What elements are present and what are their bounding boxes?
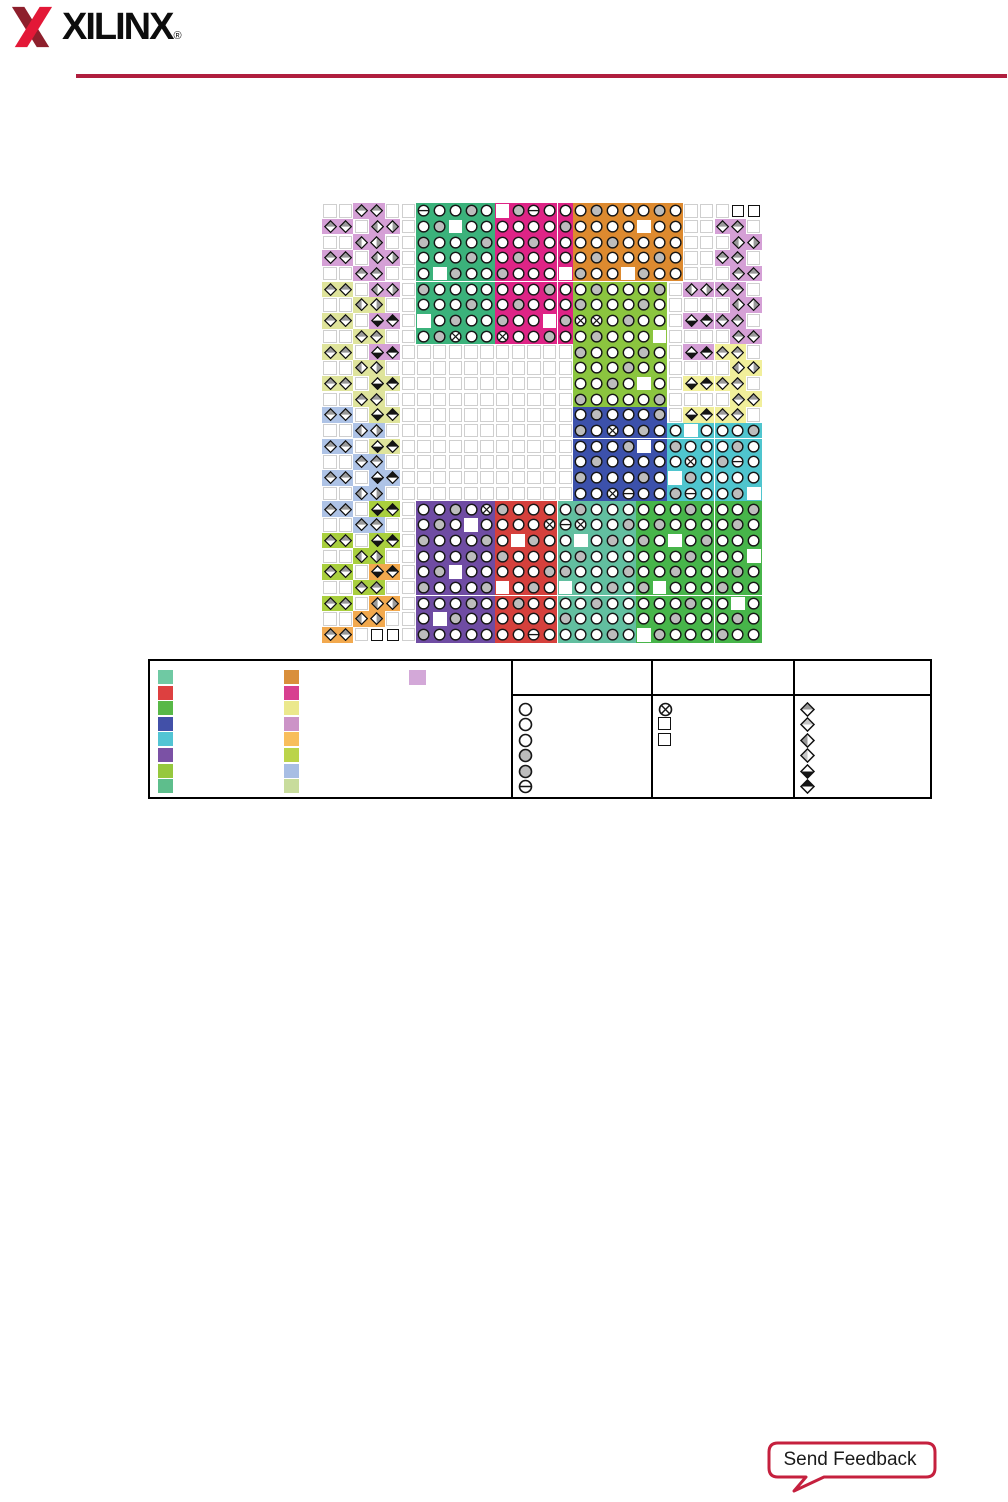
ball-cell xyxy=(479,564,495,580)
removed-ball xyxy=(449,565,463,579)
ball-cell xyxy=(652,580,668,596)
ball-cell xyxy=(416,564,432,580)
grid-cell xyxy=(510,423,526,439)
ball-cell xyxy=(620,596,636,612)
grid-cell xyxy=(510,376,526,392)
ball-cell xyxy=(526,250,542,266)
removed-ball xyxy=(747,549,761,563)
grid-cell xyxy=(699,234,715,250)
diamond-pair xyxy=(369,470,400,486)
grid-cell xyxy=(510,470,526,486)
ball-cell xyxy=(620,297,636,313)
ball-cell xyxy=(573,564,589,580)
ball-cell xyxy=(558,611,574,627)
grid-cell xyxy=(463,344,479,360)
ball-cell xyxy=(479,234,495,250)
legend-color-chip xyxy=(158,764,173,778)
grid-cell xyxy=(463,486,479,502)
ball-cell xyxy=(730,611,746,627)
ball-cell xyxy=(573,627,589,643)
diamond-pair xyxy=(353,203,384,219)
grid-cell xyxy=(322,580,338,596)
grid-cell xyxy=(353,470,369,486)
ball-cell xyxy=(479,611,495,627)
ball-cell xyxy=(652,282,668,298)
ball-cell xyxy=(730,627,746,643)
diamond-pair xyxy=(730,391,761,407)
ball-cell xyxy=(683,454,699,470)
grid-cell xyxy=(542,376,558,392)
ball-cell xyxy=(558,329,574,345)
ball-cell xyxy=(448,203,464,219)
ball-cell xyxy=(667,517,683,533)
ball-cell xyxy=(605,501,621,517)
ball-cell xyxy=(510,548,526,564)
ball-cell xyxy=(636,376,652,392)
ball-cell xyxy=(432,611,448,627)
ball-cell xyxy=(510,611,526,627)
removed-ball xyxy=(559,267,573,281)
legend-extra-chip xyxy=(409,670,426,685)
ball-cell xyxy=(652,470,668,486)
ball-cell xyxy=(510,564,526,580)
grid-cell xyxy=(448,407,464,423)
ball-cell xyxy=(463,282,479,298)
ball-cell xyxy=(542,564,558,580)
grid-cell xyxy=(416,470,432,486)
grid-cell xyxy=(432,344,448,360)
grid-cell xyxy=(746,250,762,266)
ball-cell xyxy=(573,203,589,219)
ball-cell xyxy=(558,266,574,282)
ball-cell xyxy=(463,533,479,549)
ball-cell xyxy=(652,548,668,564)
grid-cell xyxy=(558,344,574,360)
ball-cell xyxy=(558,564,574,580)
diamond-pair xyxy=(683,407,714,423)
grid-cell xyxy=(416,439,432,455)
ball-cell xyxy=(699,533,715,549)
ball-cell xyxy=(542,282,558,298)
ball-cell xyxy=(573,376,589,392)
ball-cell xyxy=(542,234,558,250)
ball-cell xyxy=(448,596,464,612)
grid-cell xyxy=(353,564,369,580)
diamond-pair xyxy=(322,596,353,612)
ball-cell xyxy=(589,250,605,266)
grid-cell xyxy=(526,470,542,486)
ball-cell xyxy=(605,376,621,392)
ball-cell xyxy=(463,580,479,596)
ball-cell xyxy=(589,517,605,533)
grid-cell xyxy=(479,360,495,376)
corner-marker-square xyxy=(369,627,385,643)
grid-cell xyxy=(353,344,369,360)
legend-color-chip xyxy=(284,748,299,762)
diamond-pair xyxy=(322,439,353,455)
diamond-pair xyxy=(369,313,400,329)
grid-cell xyxy=(385,548,401,564)
grid-cell xyxy=(432,360,448,376)
ball-cell xyxy=(683,533,699,549)
ball-cell xyxy=(495,313,511,329)
ball-cell xyxy=(636,360,652,376)
ball-cell xyxy=(636,596,652,612)
grid-cell xyxy=(510,344,526,360)
legend-color-chip xyxy=(284,717,299,731)
ball-cell xyxy=(510,266,526,282)
diamond-pair xyxy=(322,564,353,580)
ball-cell xyxy=(652,533,668,549)
ball-cell xyxy=(589,203,605,219)
ball-cell xyxy=(636,203,652,219)
ball-cell xyxy=(652,439,668,455)
ball-cell xyxy=(636,297,652,313)
grid-cell xyxy=(353,627,369,643)
grid-cell xyxy=(401,391,417,407)
ball-cell xyxy=(558,596,574,612)
grid-cell xyxy=(338,329,354,345)
grid-cell xyxy=(526,344,542,360)
grid-cell xyxy=(558,454,574,470)
ball-cell xyxy=(683,423,699,439)
ball-cell xyxy=(495,517,511,533)
ball-cell xyxy=(526,611,542,627)
legend-diamond-symbol xyxy=(800,748,815,763)
grid-cell xyxy=(338,454,354,470)
ball-cell xyxy=(589,282,605,298)
ball-cell xyxy=(463,329,479,345)
ball-cell xyxy=(652,564,668,580)
removed-ball xyxy=(668,471,682,485)
ball-cell xyxy=(605,596,621,612)
ball-cell xyxy=(479,517,495,533)
diamond-pair xyxy=(369,219,400,235)
grid-cell xyxy=(338,203,354,219)
ball-cell xyxy=(620,423,636,439)
diamond-pair xyxy=(353,548,384,564)
ball-cell xyxy=(432,219,448,235)
ball-cell xyxy=(605,564,621,580)
grid-cell xyxy=(479,407,495,423)
ball-cell xyxy=(558,297,574,313)
ball-cell xyxy=(605,344,621,360)
ball-cell xyxy=(667,611,683,627)
ball-cell xyxy=(715,501,731,517)
grid-cell xyxy=(542,407,558,423)
diamond-pair xyxy=(730,360,761,376)
ball-cell xyxy=(620,391,636,407)
ball-cell xyxy=(589,407,605,423)
diamond-pair xyxy=(322,344,353,360)
grid-cell xyxy=(510,360,526,376)
ball-cell xyxy=(699,627,715,643)
ball-cell xyxy=(432,266,448,282)
grid-cell xyxy=(385,611,401,627)
ball-cell xyxy=(495,203,511,219)
grid-cell xyxy=(416,486,432,502)
grid-cell xyxy=(526,454,542,470)
diamond-pair xyxy=(353,360,384,376)
grid-cell xyxy=(401,266,417,282)
ball-cell xyxy=(667,627,683,643)
removed-ball xyxy=(464,518,478,532)
grid-cell xyxy=(746,313,762,329)
ball-cell xyxy=(652,329,668,345)
ball-cell xyxy=(730,486,746,502)
removed-ball xyxy=(637,377,651,391)
ball-cell xyxy=(558,250,574,266)
ball-cell xyxy=(620,266,636,282)
ball-cell xyxy=(667,548,683,564)
ball-cell xyxy=(605,407,621,423)
ball-cell xyxy=(463,250,479,266)
grid-cell xyxy=(526,407,542,423)
ball-cell xyxy=(589,234,605,250)
ball-cell xyxy=(495,219,511,235)
ball-cell xyxy=(416,266,432,282)
ball-cell xyxy=(463,501,479,517)
ball-cell xyxy=(573,501,589,517)
grid-cell xyxy=(683,203,699,219)
ball-cell xyxy=(699,596,715,612)
grid-cell xyxy=(353,533,369,549)
removed-ball xyxy=(684,424,698,438)
grid-cell xyxy=(715,360,731,376)
ball-cell xyxy=(730,596,746,612)
grid-cell xyxy=(401,234,417,250)
diamond-pair xyxy=(369,250,400,266)
ball-cell xyxy=(589,376,605,392)
diamond-pair xyxy=(353,423,384,439)
grid-cell xyxy=(463,470,479,486)
ball-cell xyxy=(605,517,621,533)
ball-cell xyxy=(573,407,589,423)
grid-cell xyxy=(526,376,542,392)
grid-cell xyxy=(322,391,338,407)
grid-cell xyxy=(715,234,731,250)
ball-cell xyxy=(605,219,621,235)
ball-cell xyxy=(573,329,589,345)
ball-cell xyxy=(463,313,479,329)
ball-cell xyxy=(573,297,589,313)
ball-cell xyxy=(573,611,589,627)
ball-cell xyxy=(652,501,668,517)
ball-cell xyxy=(715,517,731,533)
ball-cell xyxy=(558,219,574,235)
ball-cell xyxy=(620,470,636,486)
grid-cell xyxy=(385,486,401,502)
removed-ball xyxy=(559,581,573,595)
ball-cell xyxy=(636,533,652,549)
ball-cell xyxy=(416,517,432,533)
ball-cell xyxy=(589,439,605,455)
corner-marker-square xyxy=(746,203,762,219)
ball-cell xyxy=(479,533,495,549)
ball-cell xyxy=(605,486,621,502)
diamond-pair xyxy=(322,376,353,392)
grid-cell xyxy=(353,219,369,235)
legend-color-chip xyxy=(158,670,173,684)
ball-cell xyxy=(558,627,574,643)
ball-cell xyxy=(636,470,652,486)
grid-cell xyxy=(667,282,683,298)
grid-cell xyxy=(338,360,354,376)
send-feedback-button[interactable]: Send Feedback xyxy=(766,1440,942,1494)
ball-cell xyxy=(542,596,558,612)
ball-cell xyxy=(667,580,683,596)
ball-cell xyxy=(510,501,526,517)
ball-cell xyxy=(715,533,731,549)
ball-cell xyxy=(652,376,668,392)
ball-cell xyxy=(573,344,589,360)
ball-cell xyxy=(636,391,652,407)
ball-cell xyxy=(715,627,731,643)
ball-cell xyxy=(495,548,511,564)
ball-cell xyxy=(448,533,464,549)
ball-cell xyxy=(542,517,558,533)
grid-cell xyxy=(448,486,464,502)
ball-cell xyxy=(652,360,668,376)
ball-cell xyxy=(573,391,589,407)
ball-cell xyxy=(620,564,636,580)
ball-cell xyxy=(573,360,589,376)
grid-cell xyxy=(558,360,574,376)
ball-cell xyxy=(526,517,542,533)
diamond-pair xyxy=(683,344,714,360)
legend-color-chip xyxy=(158,748,173,762)
ball-cell xyxy=(416,580,432,596)
ball-cell xyxy=(510,219,526,235)
ball-cell xyxy=(605,282,621,298)
ball-cell xyxy=(542,266,558,282)
ball-cell xyxy=(589,313,605,329)
grid-cell xyxy=(495,486,511,502)
removed-ball xyxy=(637,440,651,454)
grid-cell xyxy=(667,407,683,423)
ball-cell xyxy=(605,391,621,407)
ball-cell xyxy=(636,266,652,282)
ball-cell xyxy=(416,250,432,266)
ball-cell xyxy=(479,329,495,345)
ball-cell xyxy=(589,329,605,345)
grid-cell xyxy=(699,329,715,345)
ball-cell xyxy=(746,627,762,643)
diamond-pair xyxy=(322,407,353,423)
ball-cell xyxy=(715,423,731,439)
grid-cell xyxy=(542,454,558,470)
ball-cell xyxy=(620,203,636,219)
ball-cell xyxy=(558,580,574,596)
legend-color-chip xyxy=(158,717,173,731)
ball-cell xyxy=(463,234,479,250)
ball-cell xyxy=(620,580,636,596)
ball-cell xyxy=(542,580,558,596)
legend-color-chip xyxy=(284,670,299,684)
ball-cell xyxy=(558,501,574,517)
grid-cell xyxy=(463,454,479,470)
removed-ball xyxy=(496,581,510,595)
ball-cell xyxy=(636,454,652,470)
grid-cell xyxy=(432,407,448,423)
ball-cell xyxy=(667,250,683,266)
document-page: XILINX ® Send Feedback xyxy=(0,0,1008,1502)
diamond-pair xyxy=(353,454,384,470)
ball-cell xyxy=(432,517,448,533)
grid-cell xyxy=(401,297,417,313)
ball-cell xyxy=(448,611,464,627)
ball-cell xyxy=(620,376,636,392)
diamond-pair xyxy=(369,564,400,580)
ball-cell xyxy=(573,439,589,455)
ball-cell xyxy=(652,391,668,407)
grid-cell xyxy=(715,297,731,313)
ball-cell xyxy=(730,423,746,439)
ball-cell xyxy=(448,313,464,329)
grid-cell xyxy=(667,329,683,345)
grid-cell xyxy=(401,282,417,298)
package-pinout-diagram xyxy=(322,203,762,643)
diamond-pair xyxy=(353,329,384,345)
grid-cell xyxy=(479,344,495,360)
grid-cell xyxy=(526,486,542,502)
ball-cell xyxy=(416,219,432,235)
ball-cell xyxy=(432,329,448,345)
diamond-pair xyxy=(715,344,746,360)
grid-cell xyxy=(401,533,417,549)
ball-cell xyxy=(542,627,558,643)
ball-cell xyxy=(715,580,731,596)
ball-cell xyxy=(432,548,448,564)
grid-cell xyxy=(401,360,417,376)
grid-cell xyxy=(542,486,558,502)
grid-cell xyxy=(322,517,338,533)
ball-cell xyxy=(620,407,636,423)
ball-cell xyxy=(448,297,464,313)
ball-cell xyxy=(652,313,668,329)
diamond-pair xyxy=(322,282,353,298)
diamond-pair xyxy=(715,407,746,423)
ball-cell xyxy=(715,548,731,564)
ball-cell xyxy=(715,564,731,580)
grid-cell xyxy=(558,376,574,392)
ball-cell xyxy=(746,596,762,612)
legend-color-chip xyxy=(158,686,173,700)
ball-cell xyxy=(605,250,621,266)
ball-cell xyxy=(636,423,652,439)
grid-cell xyxy=(448,391,464,407)
ball-cell xyxy=(416,611,432,627)
ball-cell xyxy=(479,501,495,517)
grid-cell xyxy=(463,391,479,407)
ball-cell xyxy=(479,203,495,219)
xilinx-wordmark: XILINX xyxy=(62,4,172,50)
ball-cell xyxy=(667,486,683,502)
diamond-pair xyxy=(683,282,714,298)
ball-cell xyxy=(636,344,652,360)
send-feedback-label: Send Feedback xyxy=(766,1449,934,1471)
removed-ball xyxy=(433,612,447,626)
grid-cell xyxy=(558,439,574,455)
ball-cell xyxy=(510,329,526,345)
ball-cell xyxy=(699,611,715,627)
grid-cell xyxy=(479,391,495,407)
diamond-pair xyxy=(322,250,353,266)
grid-cell xyxy=(495,454,511,470)
grid-cell xyxy=(510,407,526,423)
ball-cell xyxy=(605,234,621,250)
ball-cell xyxy=(589,533,605,549)
